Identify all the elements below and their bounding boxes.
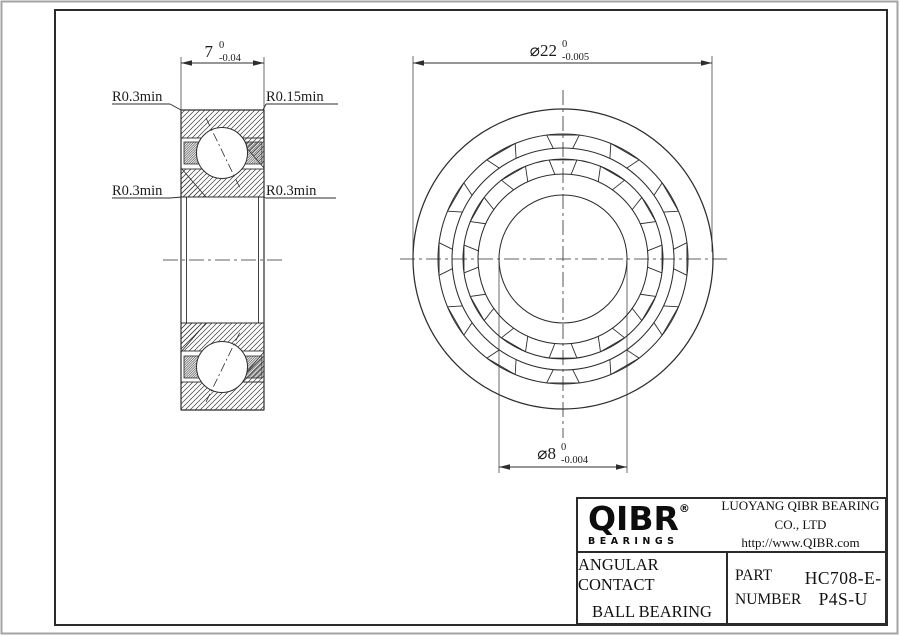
outer-diameter-value: ⌀22 (530, 41, 557, 60)
section-width-tol-lower: -0.04 (219, 53, 242, 64)
title-block-detail-row: ANGULAR CONTACT BALL BEARING PART NUMBER… (578, 553, 885, 623)
logo-text: QIBR (588, 499, 679, 538)
logo-subtext: BEARINGS (588, 536, 718, 547)
bore-diameter-tol-lower: -0.004 (561, 455, 589, 466)
bore-diameter-value: ⌀8 (537, 444, 556, 463)
part-label-line1: PART (735, 567, 801, 585)
bore-diameter-tol-upper: 0 (561, 442, 566, 453)
product-name-line1: ANGULAR CONTACT (578, 555, 726, 595)
registered-trademark-symbol: ® (679, 502, 690, 515)
drawing-sheet: 7 0 -0.04 R0.3min R0.15min R0.3min R0.3m… (0, 0, 900, 636)
outer-diameter-tol-lower: -0.005 (562, 52, 589, 63)
company-info: LUOYANG QIBR BEARING CO., LTD http://www… (718, 497, 885, 554)
logo-text-line: QIBR® (588, 503, 718, 534)
part-label-line2: NUMBER (735, 591, 801, 609)
radius-label-top-right: R0.15min (266, 89, 324, 105)
radius-label-mid-right: R0.3min (266, 183, 317, 199)
part-number-value: HC708-E-P4S-U (801, 566, 885, 610)
bore-diameter-dimension: ⌀8 0 -0.004 (537, 442, 589, 466)
radius-label-top-left: R0.3min (112, 89, 163, 105)
part-number-label: PART NUMBER (728, 567, 801, 609)
title-block-header-row: QIBR® BEARINGS LUOYANG QIBR BEARING CO.,… (578, 499, 885, 553)
title-block: QIBR® BEARINGS LUOYANG QIBR BEARING CO.,… (576, 497, 887, 625)
radius-label-mid-left: R0.3min (112, 183, 163, 199)
company-website: http://www.QIBR.com (718, 534, 883, 553)
section-width-value: 7 (205, 42, 214, 61)
section-width-dimension: 7 0 -0.04 (205, 40, 242, 64)
drawing-geometry (112, 56, 728, 473)
outer-diameter-dimension: ⌀22 0 -0.005 (530, 39, 589, 63)
product-name: ANGULAR CONTACT BALL BEARING (578, 553, 728, 623)
company-logo: QIBR® BEARINGS (578, 503, 718, 546)
company-name: LUOYANG QIBR BEARING CO., LTD (718, 497, 883, 535)
section-width-tol-upper: 0 (219, 40, 224, 51)
part-number-cell: PART NUMBER HC708-E-P4S-U (728, 553, 885, 623)
outer-diameter-tol-upper: 0 (562, 39, 567, 50)
product-name-line2: BALL BEARING (592, 602, 712, 622)
